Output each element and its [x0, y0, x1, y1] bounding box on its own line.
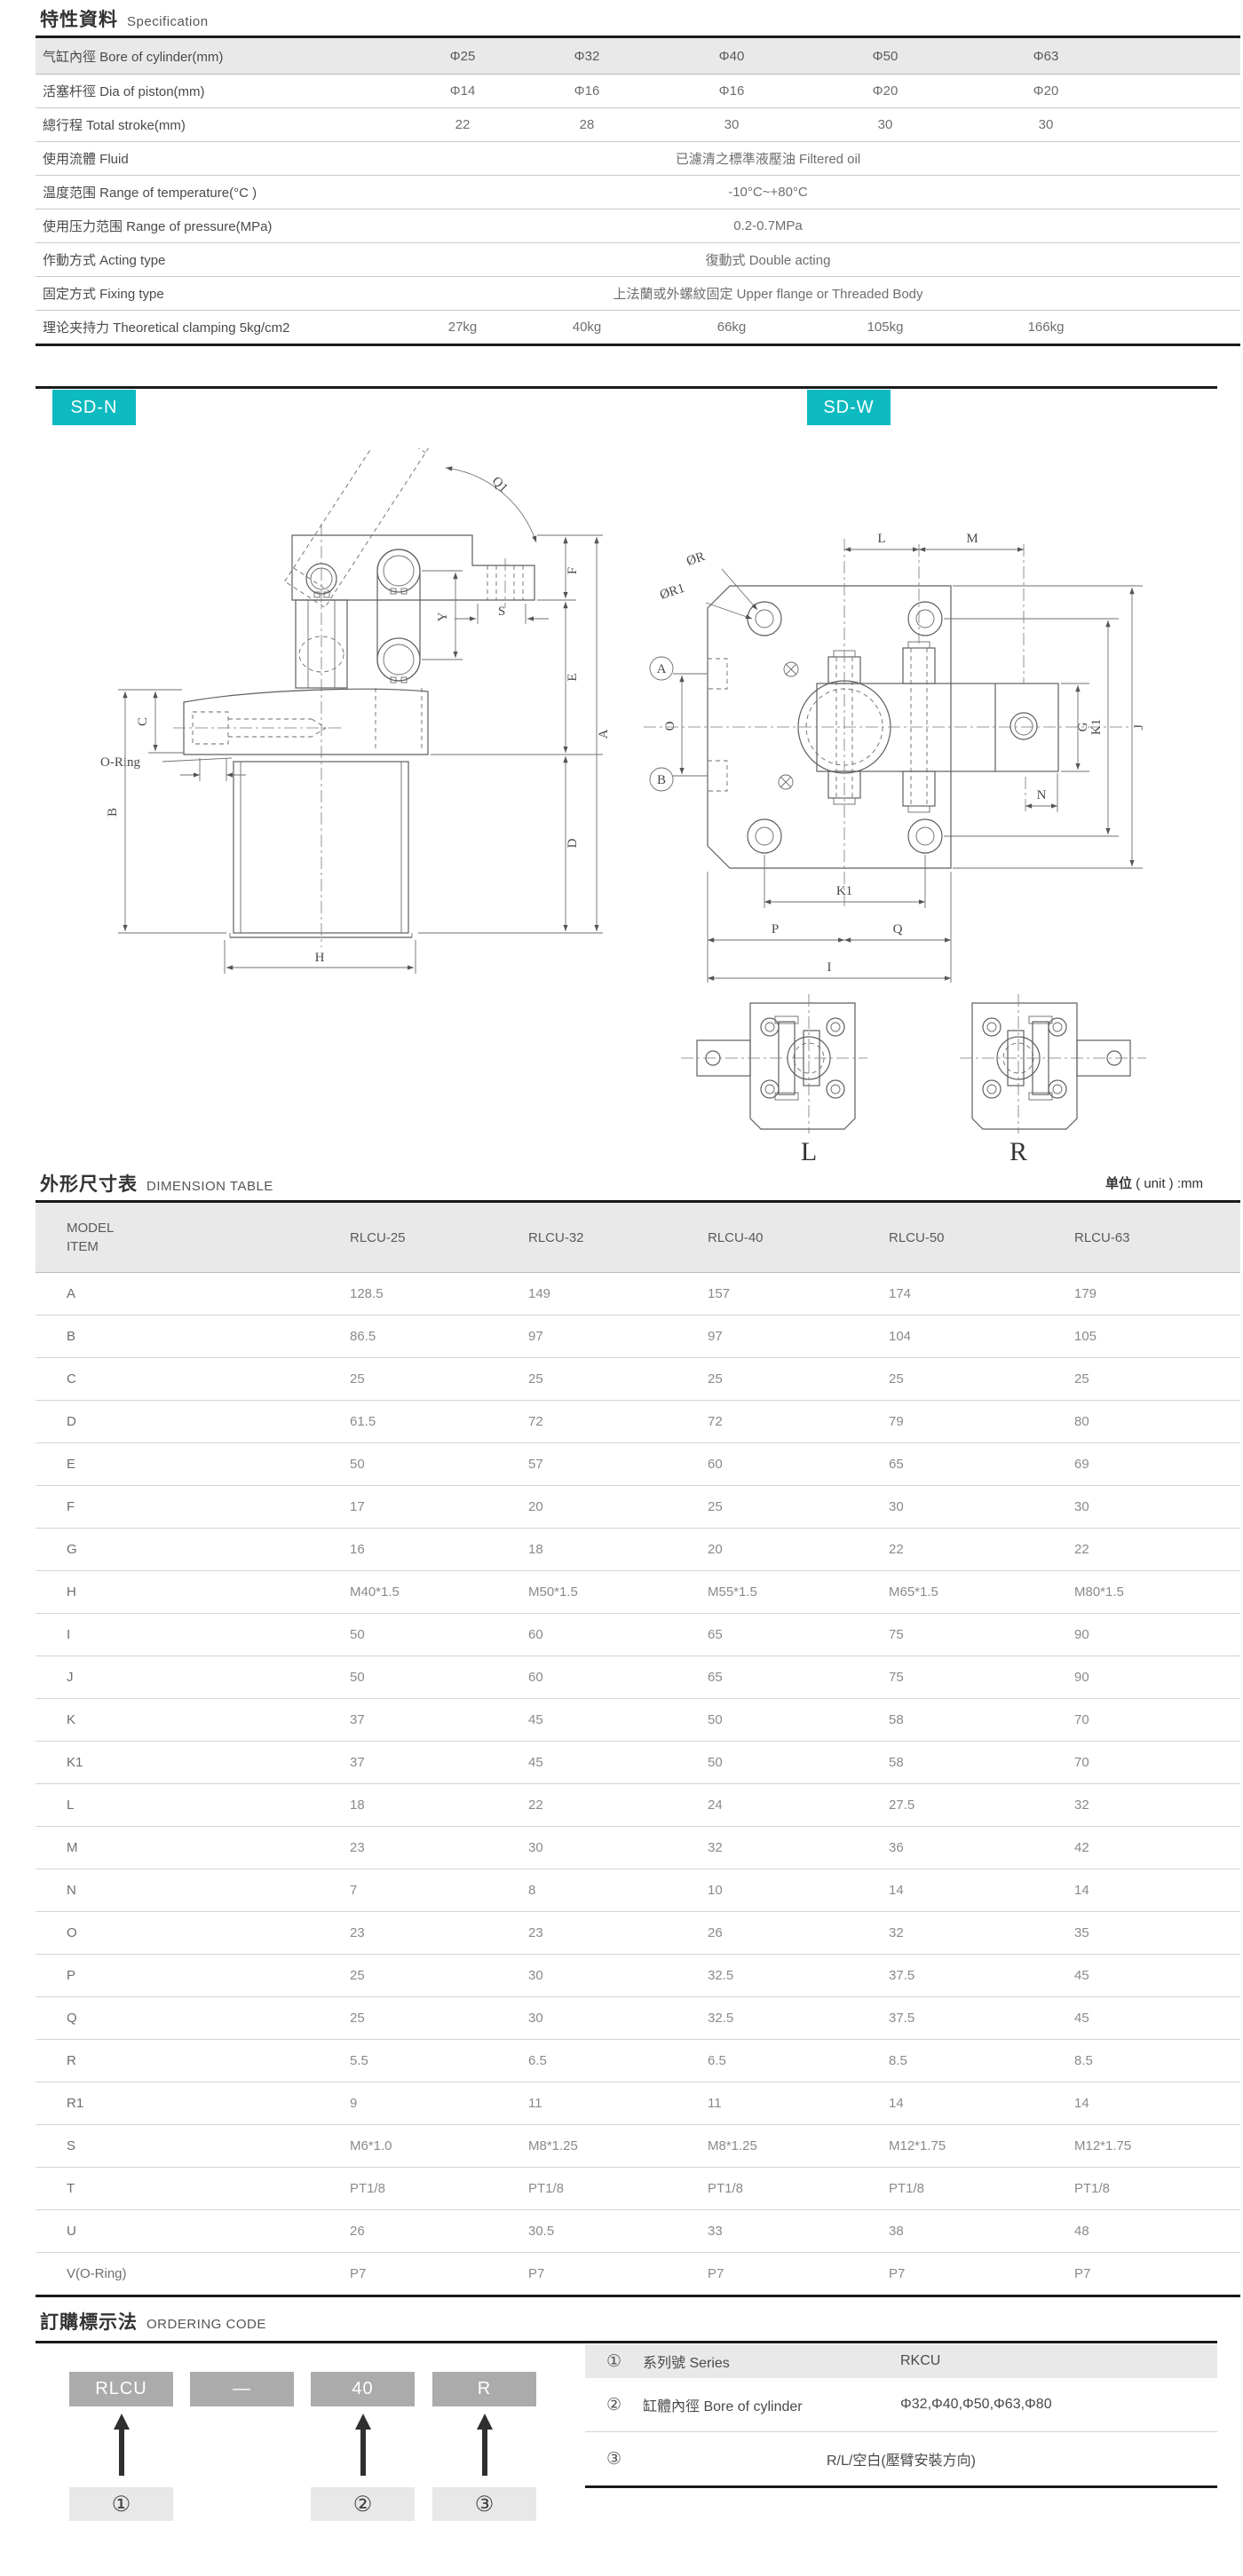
spec-row: 作動方式 Acting type復動式 Double acting: [36, 243, 1240, 277]
dim-value: 23: [350, 1840, 528, 1855]
dim-value: 60: [528, 1670, 708, 1685]
dim-value: 75: [889, 1670, 1074, 1685]
dim-item-label: L: [36, 1798, 350, 1813]
spec-row: 固定方式 Fixing type上法蘭或外螺紋固定 Upper flange o…: [36, 277, 1240, 311]
table-row: K3745505870: [36, 1699, 1240, 1742]
table-row: HM40*1.5M50*1.5M55*1.5M65*1.5M80*1.5: [36, 1571, 1240, 1614]
dim-value: 58: [889, 1712, 1074, 1727]
ordering-row-number: ②: [585, 2395, 643, 2415]
ordering-table-row: ②缸體內徑 Bore of cylinderΦ32,Φ40,Φ50,Φ63,Φ8…: [585, 2378, 1217, 2432]
spec-title-cjk: 特性資料: [40, 10, 118, 30]
ordering-title-en: ORDERING CODE: [146, 2317, 266, 2332]
dim-label-circle-b: B: [657, 773, 666, 787]
spec-row: 气缸內徑 Bore of cylinder(mm)Φ25Φ32Φ40Φ50Φ63: [36, 38, 1240, 75]
dim-value: 25: [1074, 1371, 1240, 1387]
dim-label-or: ØR: [685, 549, 707, 569]
dim-value: 32.5: [708, 2011, 889, 2026]
dim-value: 20: [708, 1542, 889, 1557]
dim-item-label: J: [36, 1670, 350, 1685]
dim-value: P7: [889, 2266, 1074, 2281]
dim-value: 37: [350, 1712, 528, 1727]
dim-value: 72: [708, 1414, 889, 1429]
dim-value: 80: [1074, 1414, 1240, 1429]
dim-title-en: DIMENSION TABLE: [146, 1179, 273, 1194]
dim-value: M65*1.5: [889, 1584, 1074, 1600]
dim-value: M12*1.75: [889, 2138, 1074, 2153]
dim-value: PT1/8: [528, 2181, 708, 2196]
dim-value: 50: [708, 1755, 889, 1770]
dim-value: 30: [1074, 1499, 1240, 1514]
spec-value: Φ20: [964, 83, 1128, 99]
dim-value: 61.5: [350, 1414, 528, 1429]
code-part-box: R: [432, 2372, 536, 2406]
dim-value: P7: [1074, 2266, 1240, 2281]
dim-value: 69: [1074, 1457, 1240, 1472]
dim-value: 26: [350, 2224, 528, 2239]
dim-value: 25: [350, 2011, 528, 2026]
dim-value: 86.5: [350, 1329, 528, 1344]
table-row: SM6*1.0M8*1.25M8*1.25M12*1.75M12*1.75: [36, 2125, 1240, 2168]
ordering-table-row: ③R/L/空白(壓臂安裝方向): [585, 2432, 1217, 2485]
spec-value: 30: [657, 117, 806, 132]
dim-value: 90: [1074, 1670, 1240, 1685]
dim-value: 25: [350, 1371, 528, 1387]
dim-value: M50*1.5: [528, 1584, 708, 1600]
ordering-row-label: 缸體內徑 Bore of cylinder: [643, 2394, 900, 2415]
callout-number-box: ③: [432, 2487, 536, 2521]
dim-label-f: F: [566, 567, 580, 574]
dim-value: 5.5: [350, 2053, 528, 2068]
section-divider-line: [36, 386, 1217, 389]
dim-value: 14: [889, 2096, 1074, 2111]
dim-label-k1-right: K1: [1089, 719, 1104, 735]
dim-item-label: Q: [36, 2011, 350, 2026]
spec-value: 28: [517, 117, 657, 132]
dimension-section-title: 外形尺寸表DIMENSION TABLE: [40, 1170, 273, 1197]
dim-item-label: V(O-Ring): [36, 2266, 350, 2281]
dim-value: 45: [528, 1712, 708, 1727]
dim-item-label: I: [36, 1627, 350, 1642]
dim-value: 8.5: [1074, 2053, 1240, 2068]
dim-value: 23: [350, 1925, 528, 1940]
dim-value: 18: [528, 1542, 708, 1557]
col-header-rlcu32: RLCU-32: [528, 1230, 708, 1245]
spec-row: 活塞杆徑 Dia of piston(mm)Φ14Φ16Φ16Φ20Φ20: [36, 75, 1240, 108]
variant-tag-sdw: SD-W: [807, 390, 891, 425]
dim-value: 25: [708, 1499, 889, 1514]
spec-value: Φ32: [517, 49, 657, 64]
spec-row: 總行程 Total stroke(mm)2228303030: [36, 108, 1240, 142]
dim-value: 11: [708, 2096, 889, 2111]
dim-value: 72: [528, 1414, 708, 1429]
dim-value: 105: [1074, 1329, 1240, 1344]
spec-value: Φ20: [806, 83, 964, 99]
dim-value: 70: [1074, 1712, 1240, 1727]
drawing-sdw-top-view: L M ØR ØR1 A B O G K1 J N K1 P: [635, 484, 1230, 1167]
ordering-row-value: Φ32,Φ40,Φ50,Φ63,Φ80: [900, 2397, 1217, 2413]
table-row: TPT1/8PT1/8PT1/8PT1/8PT1/8: [36, 2168, 1240, 2210]
code-part-box: RLCU: [69, 2372, 173, 2406]
dim-value: 25: [350, 1968, 528, 1983]
ordering-title-cjk: 訂購標示法: [40, 2312, 138, 2333]
dim-value: 65: [889, 1457, 1074, 1472]
dim-label-n: N: [1037, 788, 1047, 802]
dim-label-m: M: [966, 532, 978, 546]
dim-value: P7: [708, 2266, 889, 2281]
dim-value: 16: [350, 1542, 528, 1557]
dim-value: 70: [1074, 1755, 1240, 1770]
dim-value: 14: [1074, 2096, 1240, 2111]
dim-value: 6.5: [708, 2053, 889, 2068]
ordering-table: ①系列號 SeriesRKCU②缸體內徑 Bore of cylinderΦ32…: [585, 2344, 1217, 2488]
spec-value: Φ25: [408, 49, 517, 64]
dim-value: 97: [708, 1329, 889, 1344]
dim-item-label: U: [36, 2224, 350, 2239]
dim-label-c: C: [136, 717, 150, 726]
dim-value: 9: [350, 2096, 528, 2111]
dim-label-h: H: [315, 951, 325, 965]
table-row: A128.5149157174179: [36, 1273, 1240, 1316]
dim-label-g: G: [1076, 722, 1090, 731]
table-row: E5057606569: [36, 1443, 1240, 1486]
dim-value: 149: [528, 1286, 708, 1301]
dim-item-label: H: [36, 1584, 350, 1600]
table-row: Q253032.537.545: [36, 1997, 1240, 2040]
spec-value: Φ16: [657, 83, 806, 99]
spec-row: 使用压力范围 Range of pressure(MPa)0.2-0.7MPa: [36, 209, 1240, 243]
spec-table: 气缸內徑 Bore of cylinder(mm)Φ25Φ32Φ40Φ50Φ63…: [36, 36, 1240, 346]
dim-value: M8*1.25: [708, 2138, 889, 2153]
model-item-header: MODEL ITEM: [36, 1219, 350, 1256]
dimension-table-header: MODEL ITEM RLCU-25 RLCU-32 RLCU-40 RLCU-…: [36, 1203, 1240, 1273]
spec-value: 166kg: [964, 320, 1128, 335]
dim-value: 27.5: [889, 1798, 1074, 1813]
arm-right-label: R: [1009, 1137, 1027, 1166]
dim-label-d: D: [566, 838, 580, 848]
dim-value: 20: [528, 1499, 708, 1514]
dim-item-label: S: [36, 2138, 350, 2153]
dim-label-e: E: [566, 673, 580, 681]
dim-value: 97: [528, 1329, 708, 1344]
dim-value: 50: [350, 1627, 528, 1642]
dim-item-label: K1: [36, 1755, 350, 1770]
dim-item-label: K: [36, 1712, 350, 1727]
spec-value-span: 已濾清之標準液壓油 Filtered oil: [408, 149, 1128, 168]
dim-label-o: O: [663, 721, 677, 731]
dim-value: 8: [528, 1883, 708, 1898]
spec-value: 66kg: [657, 320, 806, 335]
dim-value: PT1/8: [708, 2181, 889, 2196]
spec-value: Φ16: [517, 83, 657, 99]
dim-value: 8.5: [889, 2053, 1074, 2068]
table-row: M2330323642: [36, 1827, 1240, 1869]
spec-row-label: 使用压力范围 Range of pressure(MPa): [36, 217, 408, 235]
dim-value: 36: [889, 1840, 1074, 1855]
datasheet-page: 特性資料Specification 气缸內徑 Bore of cylinder(…: [0, 0, 1243, 2576]
drawing-sdn-side-view: O-Ring F E D A B C Y S Q1: [49, 448, 626, 999]
dim-value: 65: [708, 1670, 889, 1685]
ordering-row-value: R/L/空白(壓臂安裝方向): [585, 2448, 1217, 2469]
dim-label-oring: O-Ring: [100, 755, 141, 770]
table-row: D61.572727980: [36, 1401, 1240, 1443]
dim-value: 42: [1074, 1840, 1240, 1855]
dim-value: 30: [528, 2011, 708, 2026]
code-part-box: 40: [311, 2372, 415, 2406]
arrow-up-2: [354, 2414, 372, 2476]
dim-value: 30: [528, 1968, 708, 1983]
dim-value: 174: [889, 1286, 1074, 1301]
dim-label-y: Y: [436, 612, 450, 621]
dim-value: 79: [889, 1414, 1074, 1429]
dim-value: 50: [350, 1457, 528, 1472]
dim-value: M12*1.75: [1074, 2138, 1240, 2153]
dim-item-label: M: [36, 1840, 350, 1855]
table-row: P253032.537.545: [36, 1955, 1240, 1997]
spec-row-label: 温度范围 Range of temperature(°C ): [36, 183, 408, 201]
dim-value: 37.5: [889, 2011, 1074, 2026]
spec-row: 温度范围 Range of temperature(°C )-10°C~+80°…: [36, 176, 1240, 209]
dim-value: 104: [889, 1329, 1074, 1344]
dim-value: PT1/8: [1074, 2181, 1240, 2196]
spec-value: Φ63: [964, 49, 1128, 64]
dim-value: 50: [350, 1670, 528, 1685]
dim-label-or1: ØR1: [658, 581, 686, 603]
dim-value: 23: [528, 1925, 708, 1940]
dim-value: 18: [350, 1798, 528, 1813]
dim-value: 14: [1074, 1883, 1240, 1898]
spec-row-label: 使用流體 Fluid: [36, 149, 408, 168]
spec-row-label: 總行程 Total stroke(mm): [36, 115, 408, 134]
dim-value: M40*1.5: [350, 1584, 528, 1600]
dim-value: 38: [889, 2224, 1074, 2239]
dim-value: P7: [350, 2266, 528, 2281]
dim-value: 25: [708, 1371, 889, 1387]
dim-label-b: B: [106, 808, 120, 817]
dim-value: 22: [528, 1798, 708, 1813]
dim-value: M80*1.5: [1074, 1584, 1240, 1600]
dim-item-label: T: [36, 2181, 350, 2196]
callout-number-box: ②: [311, 2487, 415, 2521]
spec-value: 105kg: [806, 320, 964, 335]
dim-item-label: O: [36, 1925, 350, 1940]
spec-row-label: 作動方式 Acting type: [36, 250, 408, 269]
dim-value: 32: [1074, 1798, 1240, 1813]
dim-value: P7: [528, 2266, 708, 2281]
dim-value: 11: [528, 2096, 708, 2111]
ordering-divider-line: [36, 2341, 1217, 2343]
table-row: R1911111414: [36, 2082, 1240, 2125]
dim-value: 25: [528, 1371, 708, 1387]
spec-row: 使用流體 Fluid已濾清之標準液壓油 Filtered oil: [36, 142, 1240, 176]
dim-value: 35: [1074, 1925, 1240, 1940]
dim-value: 45: [1074, 1968, 1240, 1983]
dim-value: 179: [1074, 1286, 1240, 1301]
dim-item-label: R1: [36, 2096, 350, 2111]
spec-row-label: 固定方式 Fixing type: [36, 284, 408, 303]
dim-label-q1: Q1: [489, 474, 511, 495]
dim-value: 17: [350, 1499, 528, 1514]
dim-value: 22: [889, 1542, 1074, 1557]
spec-value-span: 復動式 Double acting: [408, 250, 1128, 269]
spec-value: Φ40: [657, 49, 806, 64]
dim-value: 30: [889, 1499, 1074, 1514]
dim-item-label: A: [36, 1286, 350, 1301]
dim-value: 24: [708, 1798, 889, 1813]
spec-value-span: -10°C~+80°C: [408, 185, 1128, 200]
spec-section-title: 特性資料Specification: [40, 5, 209, 32]
spec-value: Φ14: [408, 83, 517, 99]
dim-value: 57: [528, 1457, 708, 1472]
col-header-rlcu25: RLCU-25: [350, 1230, 528, 1245]
spec-row-label: 理论夹持力 Theoretical clamping 5kg/cm2: [36, 318, 408, 336]
ordering-row-label: 系列號 Series: [643, 2351, 900, 2372]
dimension-table-body: A128.5149157174179B86.59797104105C252525…: [36, 1273, 1240, 2297]
spec-value-span: 上法蘭或外螺紋固定 Upper flange or Threaded Body: [408, 284, 1128, 303]
dim-value: 48: [1074, 2224, 1240, 2239]
arrow-up-1: [113, 2414, 131, 2476]
ordering-table-row: ①系列號 SeriesRKCU: [585, 2344, 1217, 2378]
dim-item-label: N: [36, 1883, 350, 1898]
dim-item-label: G: [36, 1542, 350, 1557]
ordering-row-value: RKCU: [900, 2353, 1217, 2369]
table-row: V(O-Ring)P7P7P7P7P7: [36, 2253, 1240, 2297]
dim-value: 25: [889, 1371, 1074, 1387]
dim-value: 157: [708, 1286, 889, 1301]
dim-label-i: I: [827, 960, 832, 975]
dim-label-j: J: [1132, 724, 1146, 730]
spec-value: 30: [964, 117, 1128, 132]
drawing-arm-right: R: [960, 994, 1146, 1166]
ordering-row-number: ①: [585, 2351, 643, 2372]
table-row: I5060657590: [36, 1614, 1240, 1656]
dim-value: 58: [889, 1755, 1074, 1770]
arrow-up-3: [476, 2414, 494, 2476]
variant-tag-sdn: SD-N: [52, 390, 136, 425]
spec-value-span: 0.2-0.7MPa: [408, 218, 1128, 233]
table-row: R5.56.56.58.58.5: [36, 2040, 1240, 2082]
dim-value: 90: [1074, 1627, 1240, 1642]
dim-value: 37: [350, 1755, 528, 1770]
dim-value: PT1/8: [889, 2181, 1074, 2196]
dim-title-cjk: 外形尺寸表: [40, 1174, 138, 1195]
spec-row: 理论夹持力 Theoretical clamping 5kg/cm227kg40…: [36, 311, 1240, 346]
table-row: K13745505870: [36, 1742, 1240, 1784]
dim-value: 30.5: [528, 2224, 708, 2239]
dim-value: 26: [708, 1925, 889, 1940]
dim-value: 33: [708, 2224, 889, 2239]
dim-value: 37.5: [889, 1968, 1074, 1983]
dim-value: 75: [889, 1627, 1074, 1642]
table-row: F1720253030: [36, 1486, 1240, 1529]
dim-value: 128.5: [350, 1286, 528, 1301]
dim-value: 7: [350, 1883, 528, 1898]
spec-value: 40kg: [517, 320, 657, 335]
code-part-box: —: [190, 2372, 294, 2406]
table-row: C2525252525: [36, 1358, 1240, 1401]
arm-left-label: L: [801, 1137, 817, 1166]
dim-item-label: E: [36, 1457, 350, 1472]
dim-value: M6*1.0: [350, 2138, 528, 2153]
callout-number-box: ①: [69, 2487, 173, 2521]
dim-value: 32.5: [708, 1968, 889, 1983]
dim-value: 22: [1074, 1542, 1240, 1557]
dim-value: M8*1.25: [528, 2138, 708, 2153]
table-row: N78101414: [36, 1869, 1240, 1912]
dim-value: 10: [708, 1883, 889, 1898]
ordering-section-title: 訂購標示法ORDERING CODE: [40, 2308, 266, 2335]
dim-item-label: B: [36, 1329, 350, 1344]
dimension-table: MODEL ITEM RLCU-25 RLCU-32 RLCU-40 RLCU-…: [36, 1200, 1240, 2297]
col-header-rlcu40: RLCU-40: [708, 1230, 889, 1245]
dim-value: PT1/8: [350, 2181, 528, 2196]
spec-title-en: Specification: [127, 14, 209, 29]
dim-label-l: L: [877, 532, 885, 546]
dim-value: 50: [708, 1712, 889, 1727]
drawing-arm-left: L: [681, 994, 867, 1166]
spec-row-label: 活塞杆徑 Dia of piston(mm): [36, 82, 408, 100]
dim-value: 65: [708, 1627, 889, 1642]
dim-value: 45: [1074, 2011, 1240, 2026]
spec-value: 30: [806, 117, 964, 132]
table-row: J5060657590: [36, 1656, 1240, 1699]
table-row: L18222427.532: [36, 1784, 1240, 1827]
table-row: G1618202222: [36, 1529, 1240, 1571]
table-row: U2630.5333848: [36, 2210, 1240, 2253]
col-header-rlcu50: RLCU-50: [889, 1230, 1074, 1245]
dim-value: 45: [528, 1755, 708, 1770]
dim-value: 60: [708, 1457, 889, 1472]
dim-label-p: P: [772, 922, 779, 936]
dim-item-label: P: [36, 1968, 350, 1983]
dim-value: 14: [889, 1883, 1074, 1898]
dim-value: M55*1.5: [708, 1584, 889, 1600]
spec-value: Φ50: [806, 49, 964, 64]
dim-value: 32: [708, 1840, 889, 1855]
dim-item-label: F: [36, 1499, 350, 1514]
dim-item-label: C: [36, 1371, 350, 1387]
spec-value: 22: [408, 117, 517, 132]
dim-item-label: D: [36, 1414, 350, 1429]
table-row: B86.59797104105: [36, 1316, 1240, 1358]
spec-value: 27kg: [408, 320, 517, 335]
dim-item-label: R: [36, 2053, 350, 2068]
table-row: O2323263235: [36, 1912, 1240, 1955]
dim-label-q: Q: [893, 922, 903, 936]
spec-row-label: 气缸內徑 Bore of cylinder(mm): [36, 47, 408, 66]
dim-value: 60: [528, 1627, 708, 1642]
col-header-rlcu63: RLCU-63: [1074, 1230, 1240, 1245]
dim-label-k1-bottom: K1: [836, 884, 852, 898]
dim-value: 6.5: [528, 2053, 708, 2068]
dim-value: 32: [889, 1925, 1074, 1940]
unit-label: 单位 ( unit ) :mm: [1105, 1173, 1203, 1192]
dim-label-circle-a: A: [657, 662, 667, 676]
dim-value: 30: [528, 1840, 708, 1855]
dim-label-a: A: [597, 729, 611, 739]
dim-label-s: S: [498, 604, 505, 619]
